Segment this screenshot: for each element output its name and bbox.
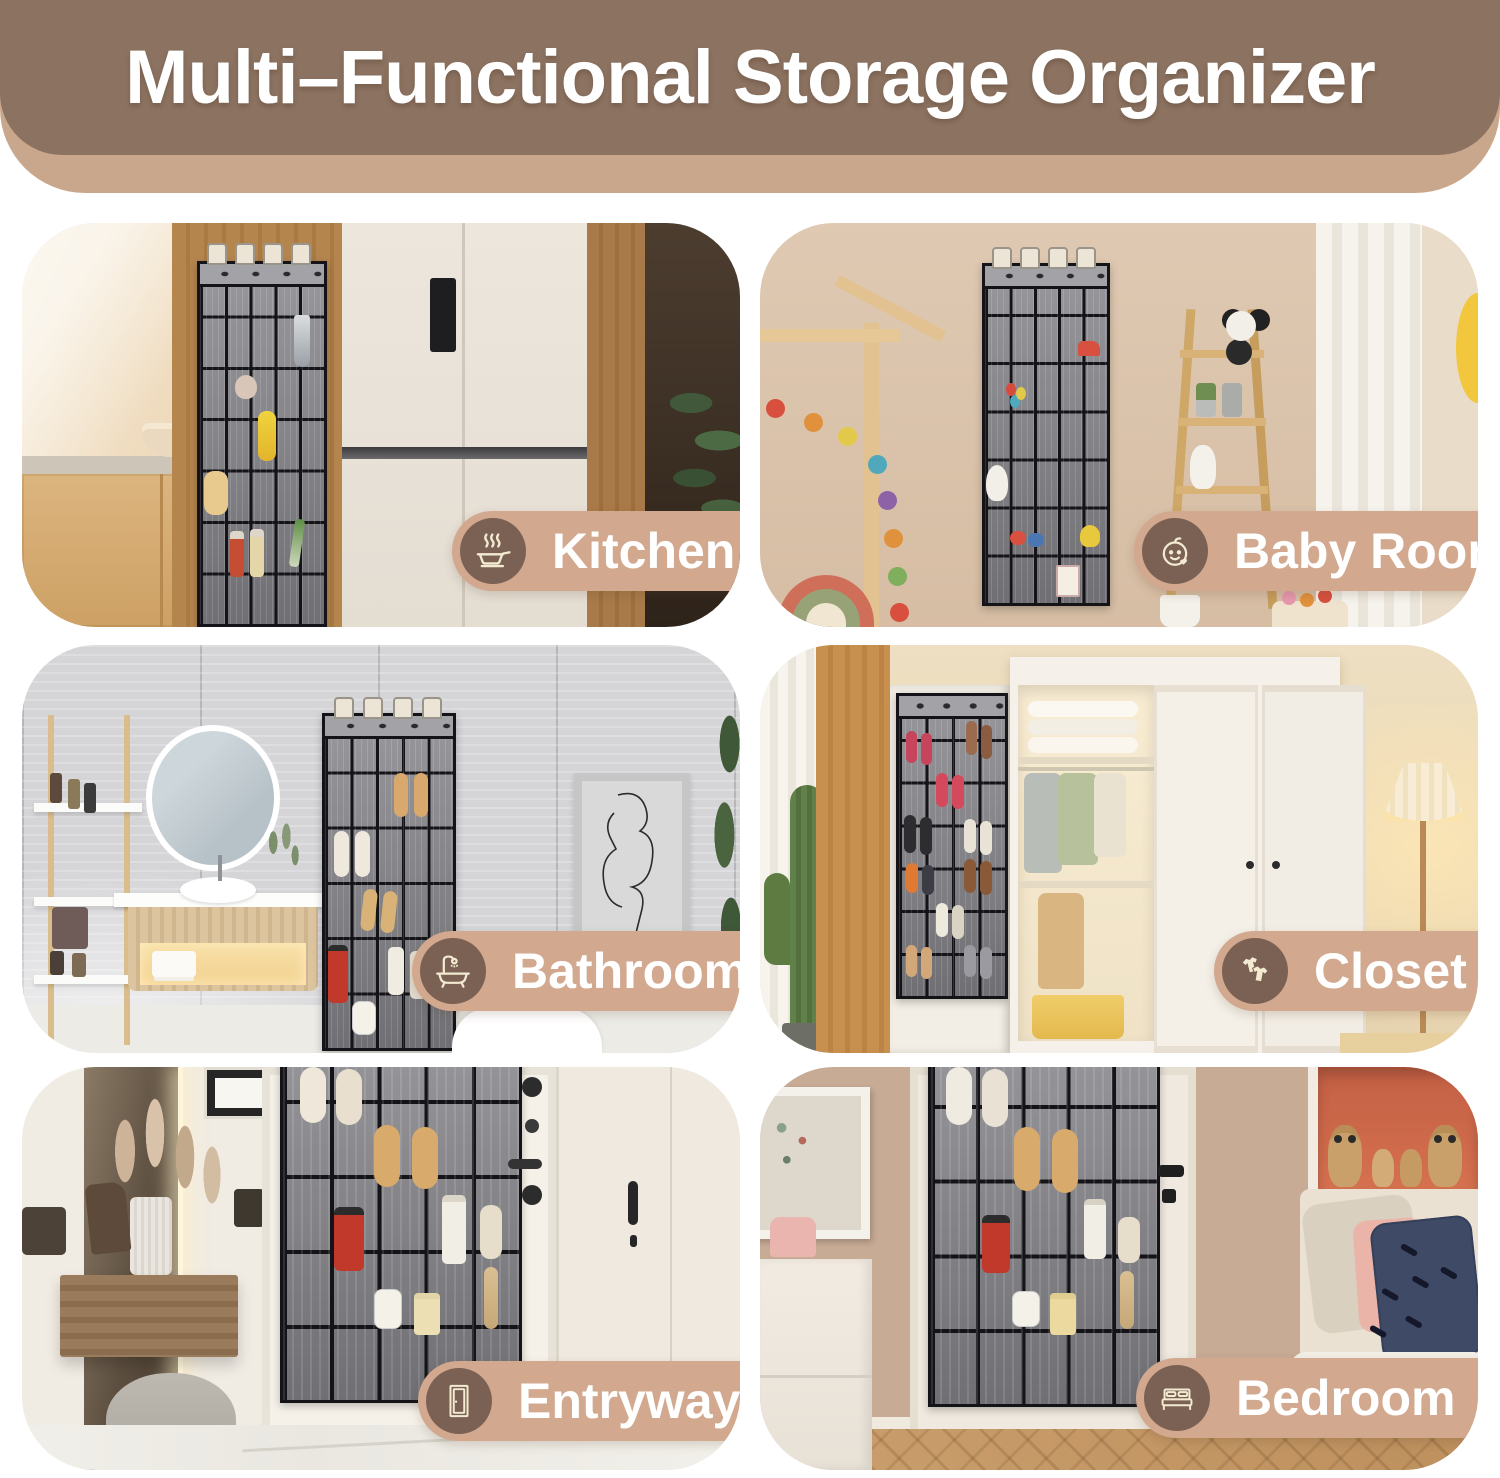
owl-eyes — [1334, 1135, 1342, 1143]
organizer-item-box — [352, 1001, 376, 1035]
shoe-white — [964, 819, 976, 853]
owl-eyes2 — [1434, 1135, 1442, 1143]
banner: Multi–Functional Storage Organizer — [0, 0, 1500, 155]
organizer-item-white-tube — [1084, 1199, 1106, 1259]
label-pill-entryway: Entryway — [418, 1361, 740, 1441]
garland-ball — [878, 491, 897, 510]
leather-bag — [84, 1181, 131, 1255]
closet-floor — [1340, 1033, 1478, 1053]
organizer-hooks — [334, 697, 442, 719]
door-handle-lever — [508, 1159, 542, 1169]
kitchen-fridge-display — [430, 278, 456, 352]
shoe-brown-oxford — [964, 859, 976, 893]
garland-ball — [890, 603, 909, 622]
shirts-icon — [1234, 950, 1276, 992]
shoe-red-heels — [906, 731, 917, 763]
organizer-item-bread — [204, 471, 228, 515]
pill-icon-circle — [426, 1368, 492, 1434]
organizer-item-card — [1056, 565, 1080, 597]
panel-bathroom: Bathroom — [22, 645, 740, 1053]
organizer-hooks — [992, 247, 1096, 269]
organizer-item-red-bottle — [982, 1215, 1010, 1273]
organizer-item-cream-jar — [414, 1293, 440, 1335]
console-shelf — [60, 1275, 238, 1357]
product-infographic: Multi–Functional Storage Organizer — [0, 0, 1500, 1478]
ladder-shelf — [1178, 418, 1266, 426]
garland-ball — [804, 413, 823, 432]
pill-icon-circle — [420, 938, 486, 1004]
shelf-rail — [48, 715, 54, 1045]
label-pill-bathroom: Bathroom — [412, 931, 740, 1011]
right-door-keyhole — [630, 1235, 637, 1247]
organizer-item-tan-flipflops — [374, 1125, 400, 1187]
organizer-item-white-pump — [442, 1195, 466, 1264]
bathtub-icon — [432, 950, 474, 992]
wall-switch — [22, 1207, 66, 1255]
shelf-board — [34, 975, 142, 984]
plant-pot — [1160, 595, 1200, 627]
hanging-tan-shirt — [1038, 893, 1084, 989]
shelf-plants — [1196, 383, 1216, 417]
organizer-item-duck — [1080, 525, 1100, 547]
owl-figurine-large2 — [1428, 1125, 1462, 1187]
dresser-seam — [760, 1375, 872, 1378]
panel-closet: Closet — [760, 645, 1478, 1053]
bedroom-art-marks — [766, 1115, 818, 1179]
organizer-item-red-bottle — [334, 1207, 364, 1271]
door-knob — [1272, 861, 1280, 869]
pill-icon-circle — [1144, 1365, 1210, 1431]
white-dresser — [760, 1259, 872, 1470]
shoe-gray — [964, 945, 976, 977]
pill-label: Bathroom — [512, 942, 740, 1000]
bedroom-door-lock — [1162, 1189, 1176, 1203]
panda-plush — [1226, 311, 1256, 341]
baby-organizer — [982, 263, 1110, 606]
organizer-item-red-bottle — [328, 945, 348, 1003]
shoe-black — [904, 815, 916, 853]
baby-face-icon — [1154, 530, 1196, 572]
linen-stack — [1028, 701, 1138, 717]
glass-vase — [130, 1197, 172, 1275]
bed-icon — [1156, 1377, 1198, 1419]
pill-icon-circle — [460, 518, 526, 584]
label-pill-baby-room: Baby Room — [1134, 511, 1478, 591]
yellow-storage-box — [1032, 995, 1124, 1039]
hanging-rail — [1018, 767, 1154, 771]
garland-ball — [766, 399, 785, 418]
shelf-towel — [52, 907, 88, 949]
hanging-sage-jacket — [1058, 773, 1098, 865]
vanity-towels — [152, 951, 196, 977]
panel-entryway: Entryway — [22, 1067, 740, 1470]
organizer-item-forks — [294, 315, 310, 367]
shelf-bottles — [50, 773, 62, 803]
baby-frame-beam — [760, 329, 900, 342]
wall-art-line-drawing — [588, 787, 660, 939]
organizer-item-white-box — [374, 1289, 402, 1329]
organizer-item-goose — [986, 465, 1008, 501]
organizer-item-spice-jar — [230, 531, 244, 577]
door-lock-dial — [522, 1077, 542, 1097]
organizer-item-tan-flipflops — [1014, 1127, 1040, 1191]
shelf-jars — [50, 951, 64, 975]
door-knob — [1246, 861, 1254, 869]
shoe-brown — [966, 721, 977, 755]
plant-sprig — [260, 817, 304, 881]
organizer-item-corn — [258, 411, 276, 461]
ladder-shelf — [1176, 486, 1268, 494]
garland-ball — [884, 529, 903, 548]
right-door-handle — [628, 1181, 638, 1225]
baby-frame-post — [864, 323, 879, 627]
banner-title: Multi–Functional Storage Organizer — [125, 34, 1375, 121]
pill-label: Closet — [1314, 942, 1478, 1000]
door-deadbolt — [522, 1185, 542, 1205]
organizer-item-slippers — [334, 831, 349, 877]
pill-label: Bedroom — [1236, 1369, 1478, 1427]
shelf-rail — [124, 715, 130, 1045]
shoe-orange-slides — [906, 863, 918, 893]
toy-basket — [1272, 601, 1348, 627]
ladder-shelf — [1180, 350, 1264, 358]
bathtub — [452, 1007, 602, 1053]
hanging-gray-coat — [1024, 773, 1062, 873]
bedroom-door-handle — [1158, 1165, 1184, 1177]
panel-bedroom: Bedroom — [760, 1067, 1478, 1470]
organizer-item-cream-pump — [1118, 1217, 1140, 1263]
organizer-item-cream-slippers — [300, 1067, 326, 1123]
pill-label: Kitchen — [552, 522, 740, 580]
pill-icon-circle — [1222, 938, 1288, 1004]
organizer-item-white-slippers — [946, 1067, 972, 1125]
closet-wood-strip — [816, 645, 890, 1053]
corner-plant — [714, 705, 740, 965]
shoe-tan-heels — [906, 945, 917, 977]
label-pill-bedroom: Bedroom — [1136, 1358, 1478, 1438]
pink-decor — [770, 1217, 816, 1257]
garland-ball — [868, 455, 887, 474]
organizer-hooks — [207, 243, 311, 265]
pillow-navy-bone-pattern — [1369, 1214, 1478, 1364]
organizer-item-hairbrush — [484, 1267, 498, 1329]
faucet — [218, 855, 222, 881]
kitchen-plant-leaf — [670, 373, 740, 523]
kitchen-cabinet-seam — [160, 474, 163, 627]
shoe-red-sneakers — [936, 773, 948, 807]
owl-figurine-small — [1372, 1149, 1394, 1187]
organizer-item-white-bottles — [388, 947, 404, 995]
basket-balls — [1282, 591, 1296, 605]
organizer-item-toy-car — [1078, 341, 1100, 356]
door-lock-small — [525, 1119, 539, 1133]
organizer-item-garlic — [235, 375, 257, 399]
shelf-board — [34, 803, 142, 812]
garland-ball — [838, 427, 857, 446]
closet-shelf — [1018, 757, 1154, 764]
hanging-cream-shirt — [1094, 773, 1126, 857]
cooking-pan-icon — [472, 530, 514, 572]
doll-plush — [1190, 445, 1216, 489]
shoe-white-sneakers — [936, 903, 948, 937]
kitchen-fridge-handle — [342, 447, 587, 459]
organizer-item-blocks — [1010, 531, 1026, 545]
organizer-item-sandals — [394, 773, 408, 817]
wall-switch-small — [234, 1189, 264, 1227]
garland-ball — [888, 567, 907, 586]
panel-baby-room: Baby Room — [760, 223, 1478, 627]
label-pill-closet: Closet — [1214, 931, 1478, 1011]
pill-label: Baby Room — [1234, 522, 1478, 580]
organizer-item-white-box — [1012, 1291, 1040, 1327]
organizer-item-yellow-jar — [1050, 1293, 1076, 1335]
pill-icon-circle — [1142, 518, 1208, 584]
organizer-item-cream-bottle — [480, 1205, 502, 1259]
closet-shelf-mid — [1018, 881, 1154, 888]
organizer-item-hairbrush — [1120, 1271, 1134, 1329]
door-icon — [438, 1380, 480, 1422]
panel-kitchen: Kitchen — [22, 223, 740, 627]
owl-figurine-small — [1400, 1149, 1422, 1187]
organizer-item-spice-jar2 — [250, 529, 264, 577]
organizer-item-balloons — [1006, 383, 1016, 396]
pill-label: Entryway — [518, 1372, 740, 1430]
label-pill-kitchen: Kitchen — [452, 511, 740, 591]
owl-figurine-large — [1328, 1125, 1362, 1187]
